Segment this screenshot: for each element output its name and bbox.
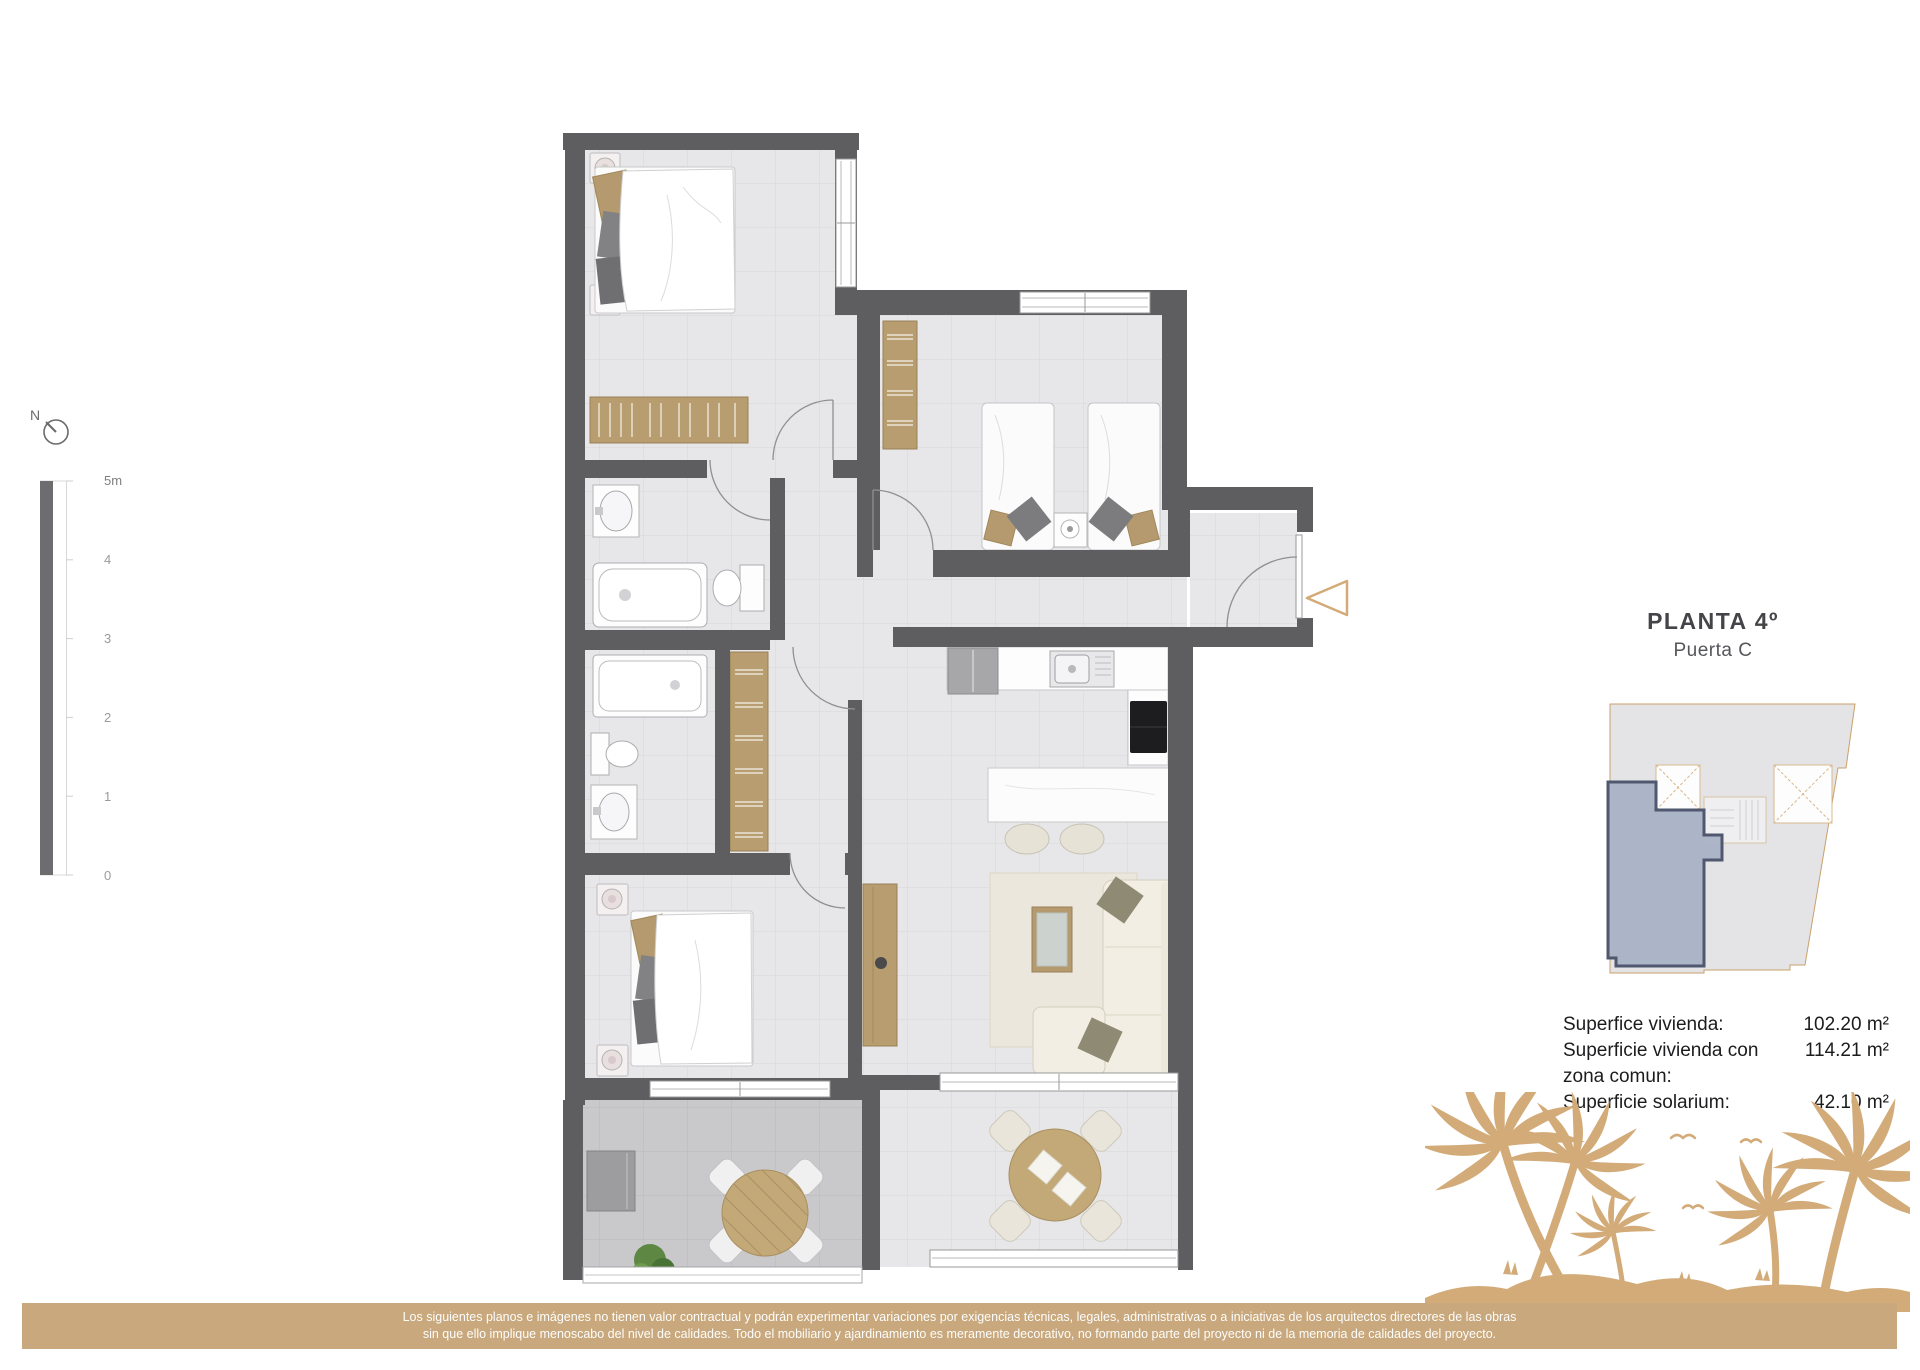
disclaimer-bar: Los siguientes planos e imágenes no tien… [22, 1303, 1897, 1349]
title-block: PLANTA 4º Puerta C [1563, 608, 1863, 662]
page-title: PLANTA 4º [1563, 608, 1863, 635]
scale-label-5m: 5m [104, 473, 122, 488]
bedroom-1 [590, 153, 748, 443]
north-compass-icon: N [20, 396, 92, 458]
area-value: 102.20 m² [1781, 1012, 1915, 1038]
area-row: Superficie vivienda con zona comun: 114.… [1563, 1038, 1915, 1090]
dining-table [1009, 1129, 1101, 1221]
window-bedroom-1 [836, 159, 856, 287]
hall-wardrobe [730, 652, 768, 851]
stool [1060, 824, 1104, 854]
kitchen-island [988, 768, 1172, 822]
wardrobe [590, 397, 748, 443]
stool [1005, 824, 1049, 854]
round-table [722, 1170, 808, 1256]
scale-label-3: 3 [104, 631, 111, 646]
highlighted-unit [1608, 782, 1722, 966]
wardrobe [883, 321, 917, 449]
scale-bar: 5m 4 3 2 1 0 [40, 478, 150, 882]
scale-label-1: 1 [104, 789, 111, 804]
svg-text:N: N [30, 407, 40, 423]
window-terrace-right [930, 1250, 1178, 1267]
palm-beach-illustration [1425, 1092, 1910, 1312]
window-living-terrace [940, 1073, 1178, 1091]
disclaimer-line-1: Los siguientes planos e imágenes no tien… [22, 1309, 1897, 1326]
floor-plan [555, 95, 1355, 1310]
toilet [740, 565, 764, 611]
area-label: Superfice vivienda: [1563, 1012, 1781, 1038]
area-value: 114.21 m² [1781, 1038, 1915, 1064]
key-plan [1600, 692, 1900, 990]
storage-cabinet [587, 1151, 635, 1211]
page-subtitle: Puerta C [1563, 640, 1863, 662]
window-bedroom-3 [650, 1081, 830, 1097]
window-bedroom-2 [1020, 292, 1150, 313]
scale-label-0: 0 [104, 868, 111, 883]
tv [875, 957, 887, 969]
railing-terrace-left [583, 1267, 862, 1283]
scale-label-4: 4 [104, 552, 111, 567]
entrance-door-leaf [1296, 535, 1302, 618]
area-label: Superficie vivienda con zona comun: [1563, 1038, 1781, 1090]
scale-label-2: 2 [104, 710, 111, 725]
area-row: Superfice vivienda: 102.20 m² [1563, 1012, 1915, 1038]
disclaimer-line-2: sin que ello implique menoscabo del nive… [22, 1326, 1897, 1343]
